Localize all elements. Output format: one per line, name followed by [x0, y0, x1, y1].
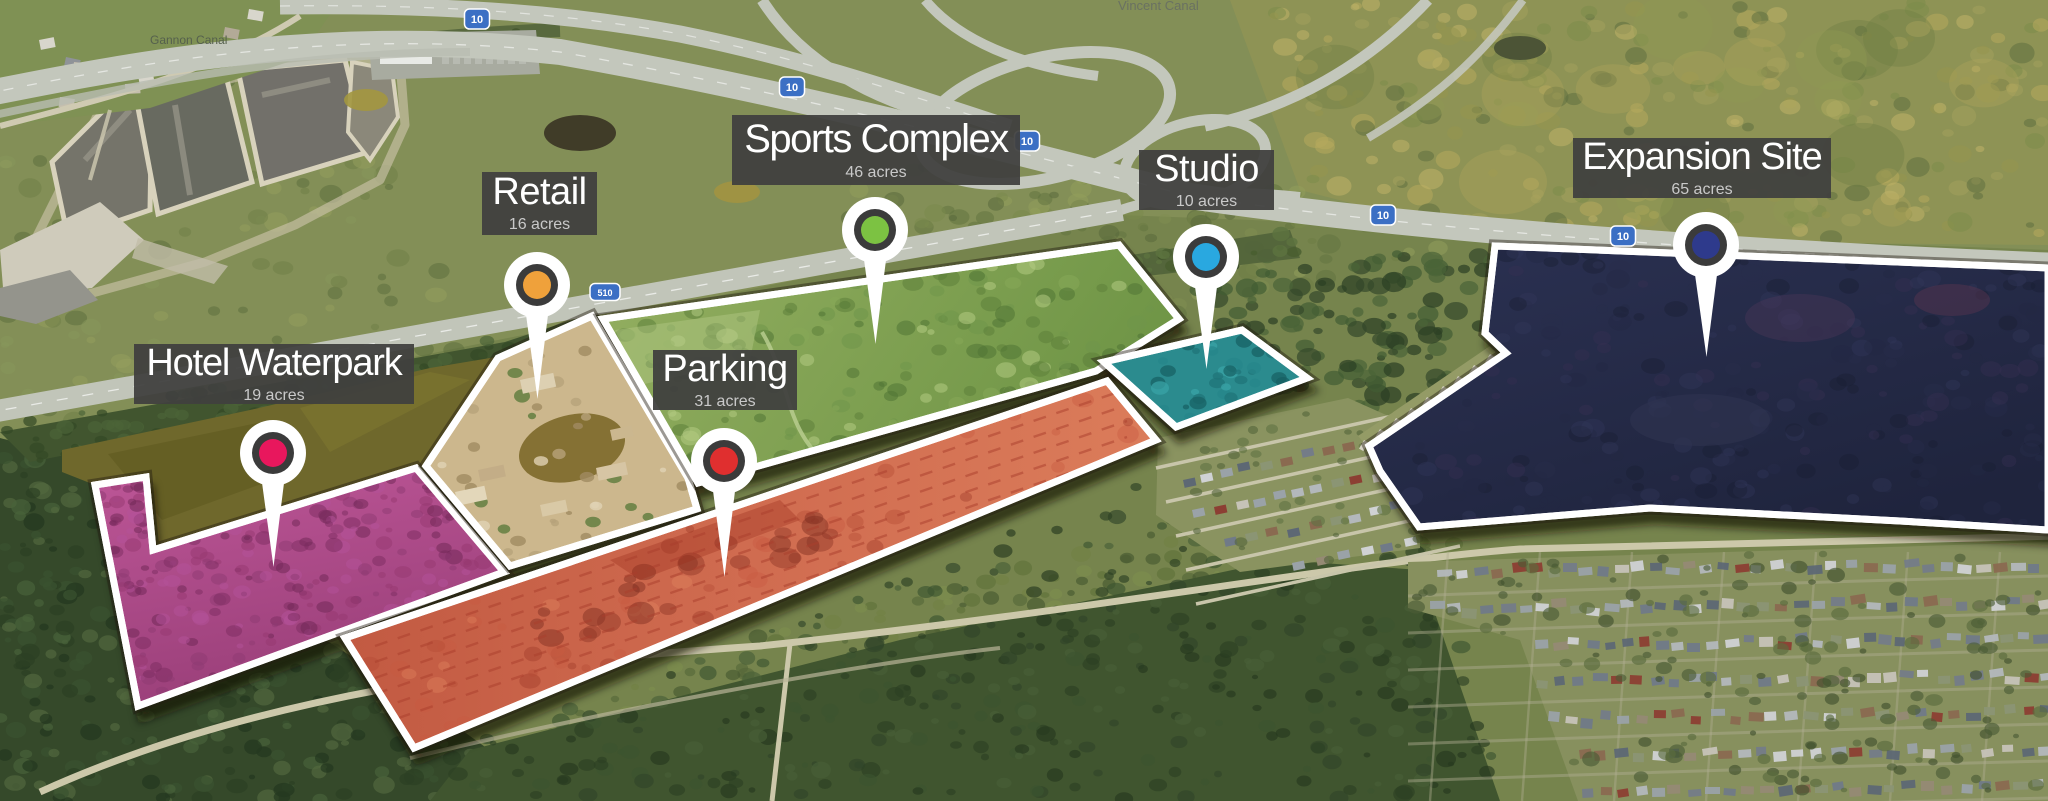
- svg-text:10: 10: [1617, 231, 1629, 243]
- svg-text:10: 10: [1377, 210, 1389, 222]
- svg-text:10: 10: [1021, 136, 1033, 148]
- svg-text:Vincent Canal: Vincent Canal: [1118, 0, 1199, 13]
- svg-text:510: 510: [597, 288, 612, 298]
- svg-text:10: 10: [471, 14, 483, 26]
- svg-text:10: 10: [786, 82, 798, 94]
- svg-text:Gannon Canal: Gannon Canal: [150, 33, 227, 47]
